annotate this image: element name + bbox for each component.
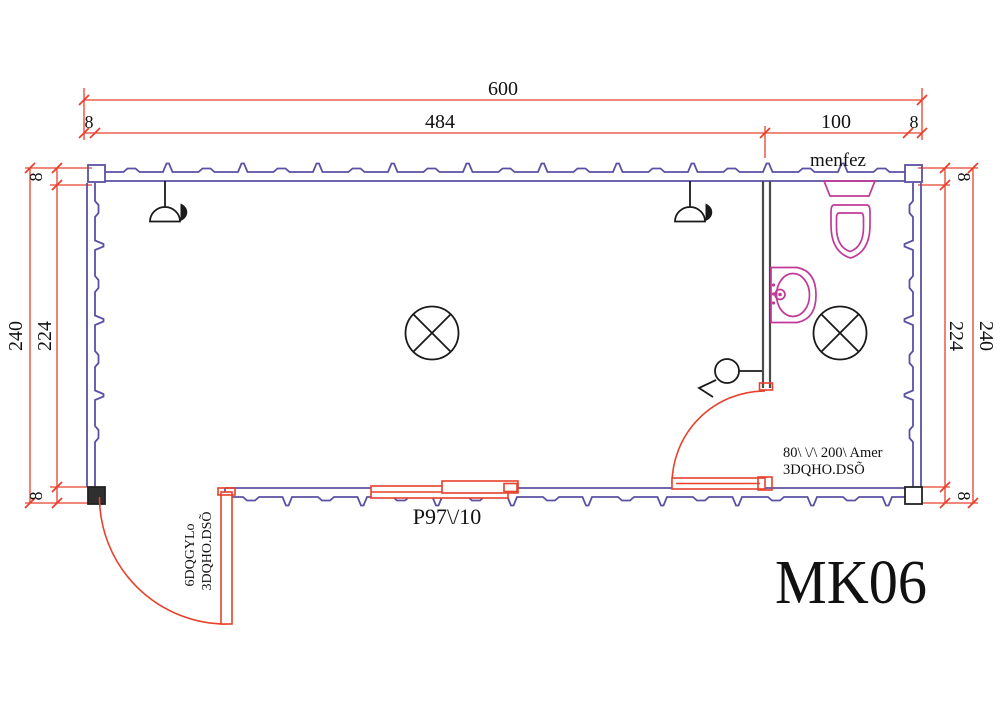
dim-label-interior-width: 484 bbox=[425, 111, 455, 133]
corner-post-bottom-left bbox=[88, 487, 105, 504]
wall-lamp-icon bbox=[150, 181, 187, 222]
sink-mount-dot bbox=[772, 292, 775, 295]
floor-plan-drawing: 600 8 484 100 8 menfez 240 224 8 8 240 2… bbox=[0, 0, 1000, 707]
toilet-bowl-inner bbox=[837, 213, 864, 252]
electrical-symbols bbox=[150, 181, 867, 397]
corner-post-bottom-right bbox=[905, 487, 922, 504]
ceiling-light-icon bbox=[406, 307, 459, 360]
wc-door-swing-arc bbox=[672, 391, 765, 484]
wall-lamp-icon bbox=[675, 181, 712, 222]
entry-door-label-line1: 6DQGYLo bbox=[183, 524, 198, 587]
window-label: P97\/10 bbox=[413, 504, 481, 529]
wall-bottom-corrugation bbox=[225, 497, 905, 506]
sink-mount-dot bbox=[772, 283, 775, 286]
faucet-dot bbox=[778, 293, 782, 297]
dim-label-left-total: 240 bbox=[5, 321, 27, 351]
dim-label-right-wall-top: 8 bbox=[954, 173, 974, 182]
dim-label-left-wall-top: 8 bbox=[26, 173, 46, 182]
dim-label-left-wall-bottom: 8 bbox=[26, 492, 46, 501]
dim-label-right-wall-bottom: 8 bbox=[954, 492, 974, 501]
wc-door-label-line1: 80\ \/\ 200\ Amer bbox=[783, 445, 883, 461]
wc-door-label-line2: 3DQHO.DSÕ bbox=[783, 461, 865, 478]
ceiling-light-icon bbox=[814, 307, 867, 360]
vent-label: menfez bbox=[810, 150, 866, 171]
sink-mount-dot bbox=[772, 301, 775, 304]
dim-label-left-interior: 224 bbox=[34, 321, 56, 351]
window-end-block bbox=[504, 484, 517, 492]
dim-label-right-interior: 224 bbox=[945, 321, 967, 351]
text-labels: 600 8 484 100 8 menfez 240 224 8 8 240 2… bbox=[5, 78, 997, 617]
dim-label-wall-right: 8 bbox=[910, 112, 919, 132]
entry-door-label-line2: 3DQHO.DSÕ bbox=[198, 512, 215, 591]
wc-fixtures bbox=[771, 181, 875, 323]
dim-label-right-total: 240 bbox=[975, 321, 997, 351]
wall-left-corrugation bbox=[95, 183, 104, 487]
vent-opening bbox=[824, 181, 875, 196]
dim-label-total-width: 600 bbox=[488, 78, 518, 100]
floor-plan-sheet: 600 8 484 100 8 menfez 240 224 8 8 240 2… bbox=[0, 0, 1000, 707]
entry-door-leaf bbox=[221, 492, 232, 624]
wall-right-corrugation bbox=[905, 183, 914, 487]
dim-label-wall-left: 8 bbox=[85, 112, 94, 132]
dim-label-wc-width: 100 bbox=[821, 111, 851, 133]
model-label: MK06 bbox=[775, 549, 927, 617]
wall-top-corrugation bbox=[106, 164, 905, 173]
